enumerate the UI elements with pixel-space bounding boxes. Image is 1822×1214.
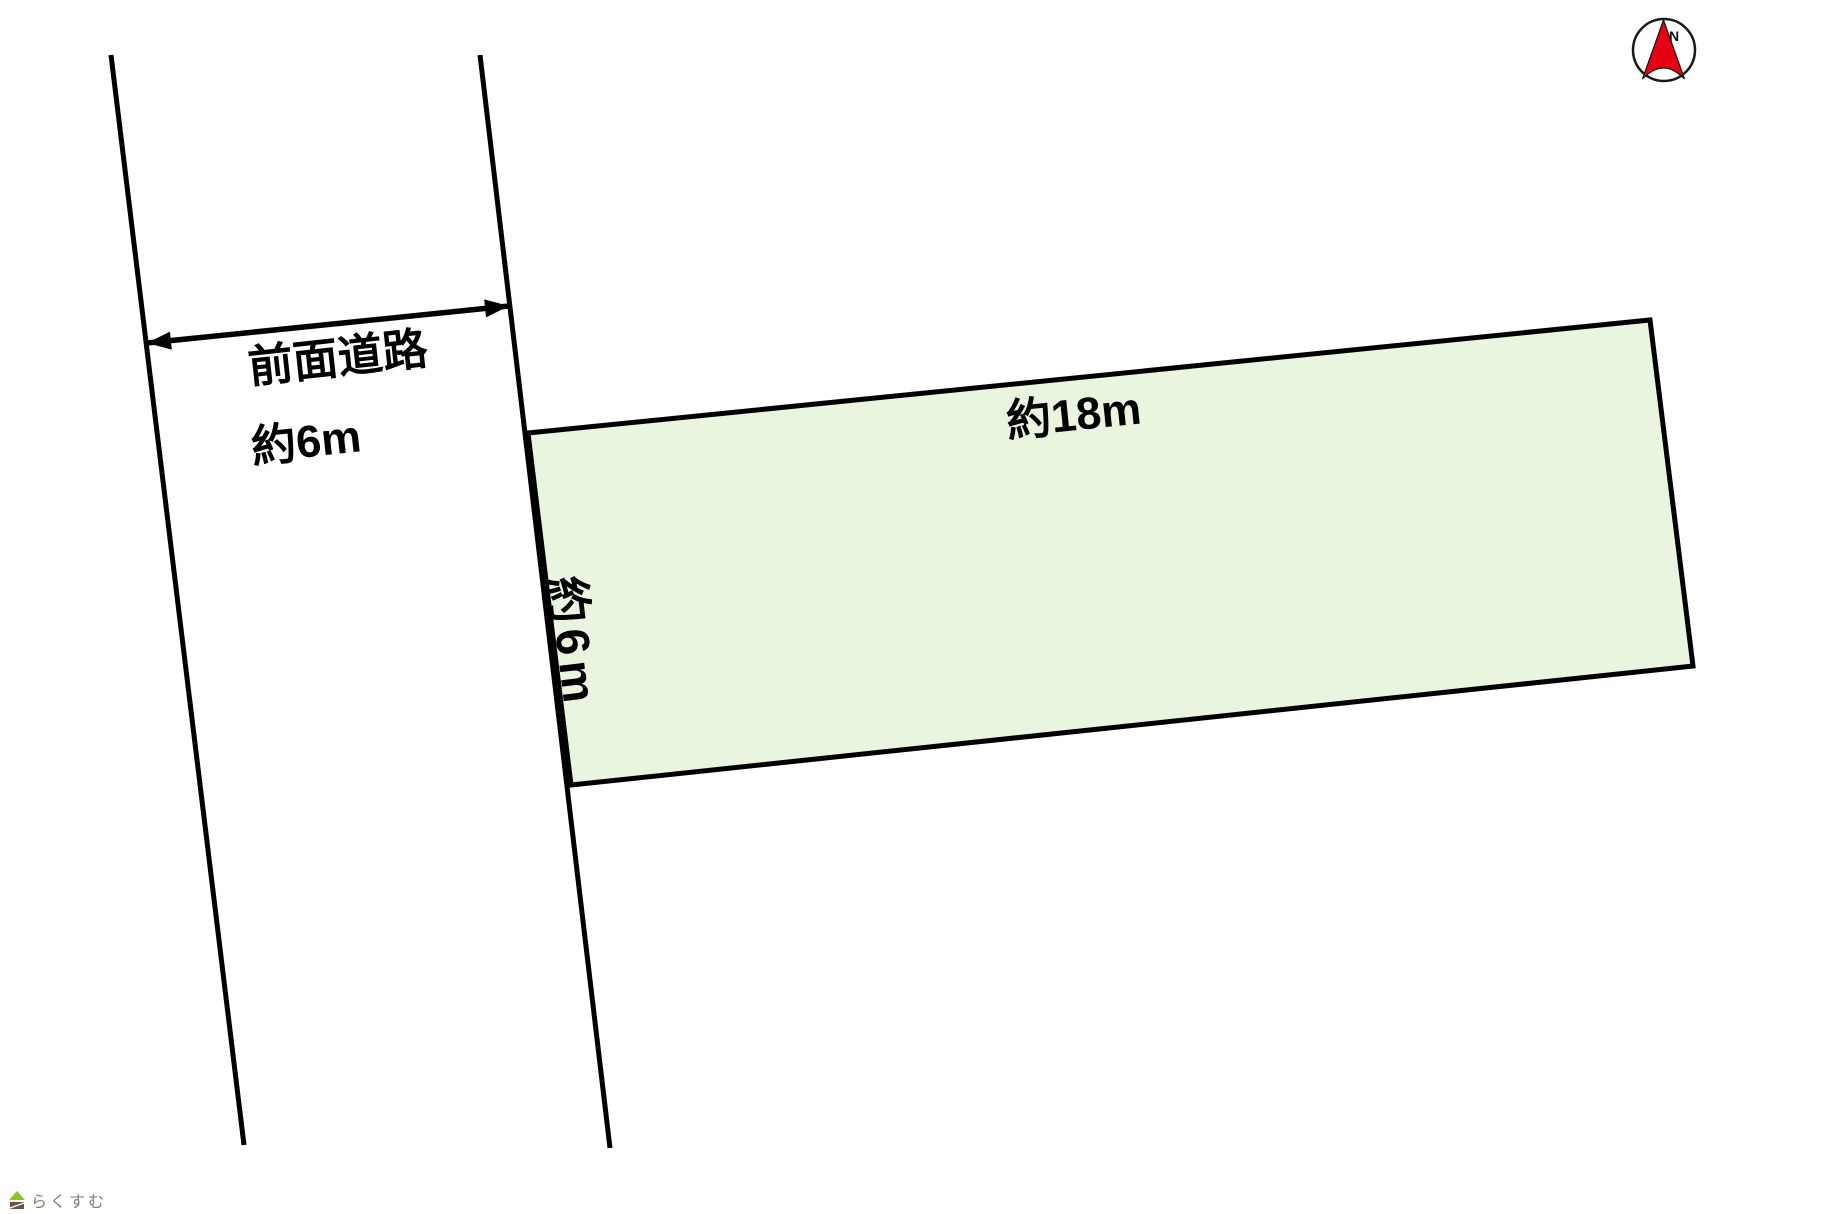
road-width-label: 約6m <box>249 410 364 473</box>
road-name-label: 前面道路 <box>246 323 431 393</box>
compass-north-label: N <box>1669 28 1679 44</box>
land-plot-diagram: 前面道路 約6m 約18m 約6m N らくすむ <box>0 0 1822 1214</box>
north-compass-icon: N <box>1633 19 1695 81</box>
logo-house-icon <box>9 1191 25 1209</box>
road-left-edge <box>111 55 244 1145</box>
logo-house-roof <box>9 1191 25 1200</box>
logo-text: らくすむ <box>31 1193 107 1211</box>
plot-diagram-svg: 前面道路 約6m 約18m 約6m N らくすむ <box>0 0 1822 1214</box>
logo-watermark: らくすむ <box>9 1191 107 1211</box>
